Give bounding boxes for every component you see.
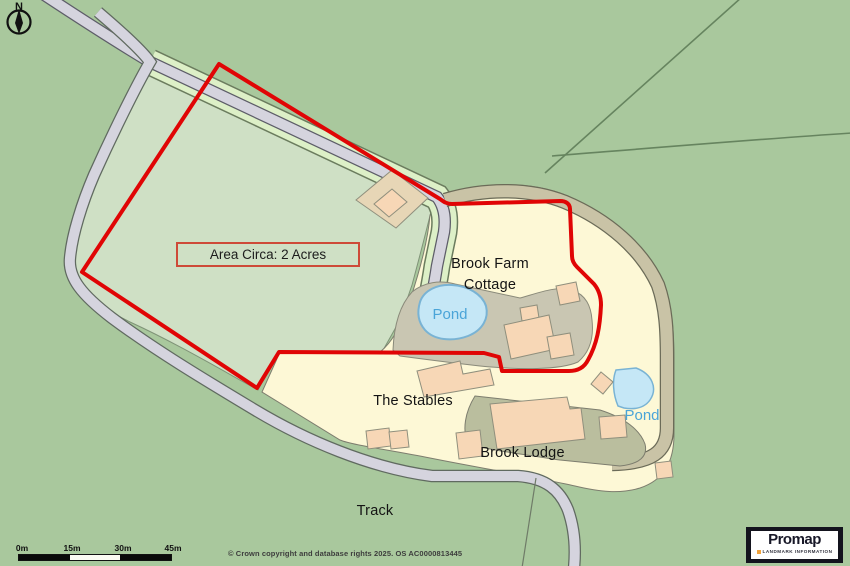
promap-tagline-row: LANDMARK INFORMATION <box>751 549 838 554</box>
pond-east-shape <box>614 368 654 409</box>
label-the-stables: The Stables <box>348 393 478 409</box>
label-brook-farm-line2: Cottage <box>420 275 560 296</box>
promap-logo: Promap LANDMARK INFORMATION <box>746 527 843 563</box>
scale-tick-45: 45m <box>164 543 181 553</box>
label-track: Track <box>345 503 405 519</box>
promap-logo-inner: Promap LANDMARK INFORMATION <box>751 531 838 559</box>
scale-bar-segments <box>18 554 172 561</box>
scale-segment-1 <box>19 555 70 560</box>
area-annotation-box: Area Circa: 2 Acres <box>176 242 360 267</box>
scale-segment-3 <box>120 555 171 560</box>
copyright-notice: © Crown copyright and database rights 20… <box>228 549 462 558</box>
scale-tick-30: 30m <box>114 543 131 553</box>
label-brook-farm-line1: Brook Farm <box>420 254 560 275</box>
scale-bar: 0m 15m 30m 45m <box>18 543 178 563</box>
north-label: N <box>15 1 23 13</box>
area-annotation-text: Area Circa: 2 Acres <box>210 247 326 262</box>
promap-tagline-text: LANDMARK INFORMATION <box>763 549 833 554</box>
stables-outbuilding-1 <box>366 428 391 449</box>
scale-segment-2 <box>70 555 121 560</box>
label-pond-east: Pond <box>612 407 672 424</box>
scale-tick-0: 0m <box>16 543 28 553</box>
shed-southeast <box>655 461 673 479</box>
promap-dot-icon <box>757 550 761 554</box>
label-pond-west: Pond <box>425 306 475 323</box>
cottage-wing <box>547 333 574 359</box>
stables-outbuilding-2 <box>389 430 409 449</box>
label-brook-lodge: Brook Lodge <box>455 445 590 461</box>
scale-tick-15: 15m <box>63 543 80 553</box>
promap-wordmark: Promap <box>751 532 838 548</box>
label-brook-farm-cottage: Brook Farm Cottage <box>420 254 560 296</box>
map-viewport: N Area Circa: 2 Acres Brook Farm Cottage… <box>0 0 850 566</box>
